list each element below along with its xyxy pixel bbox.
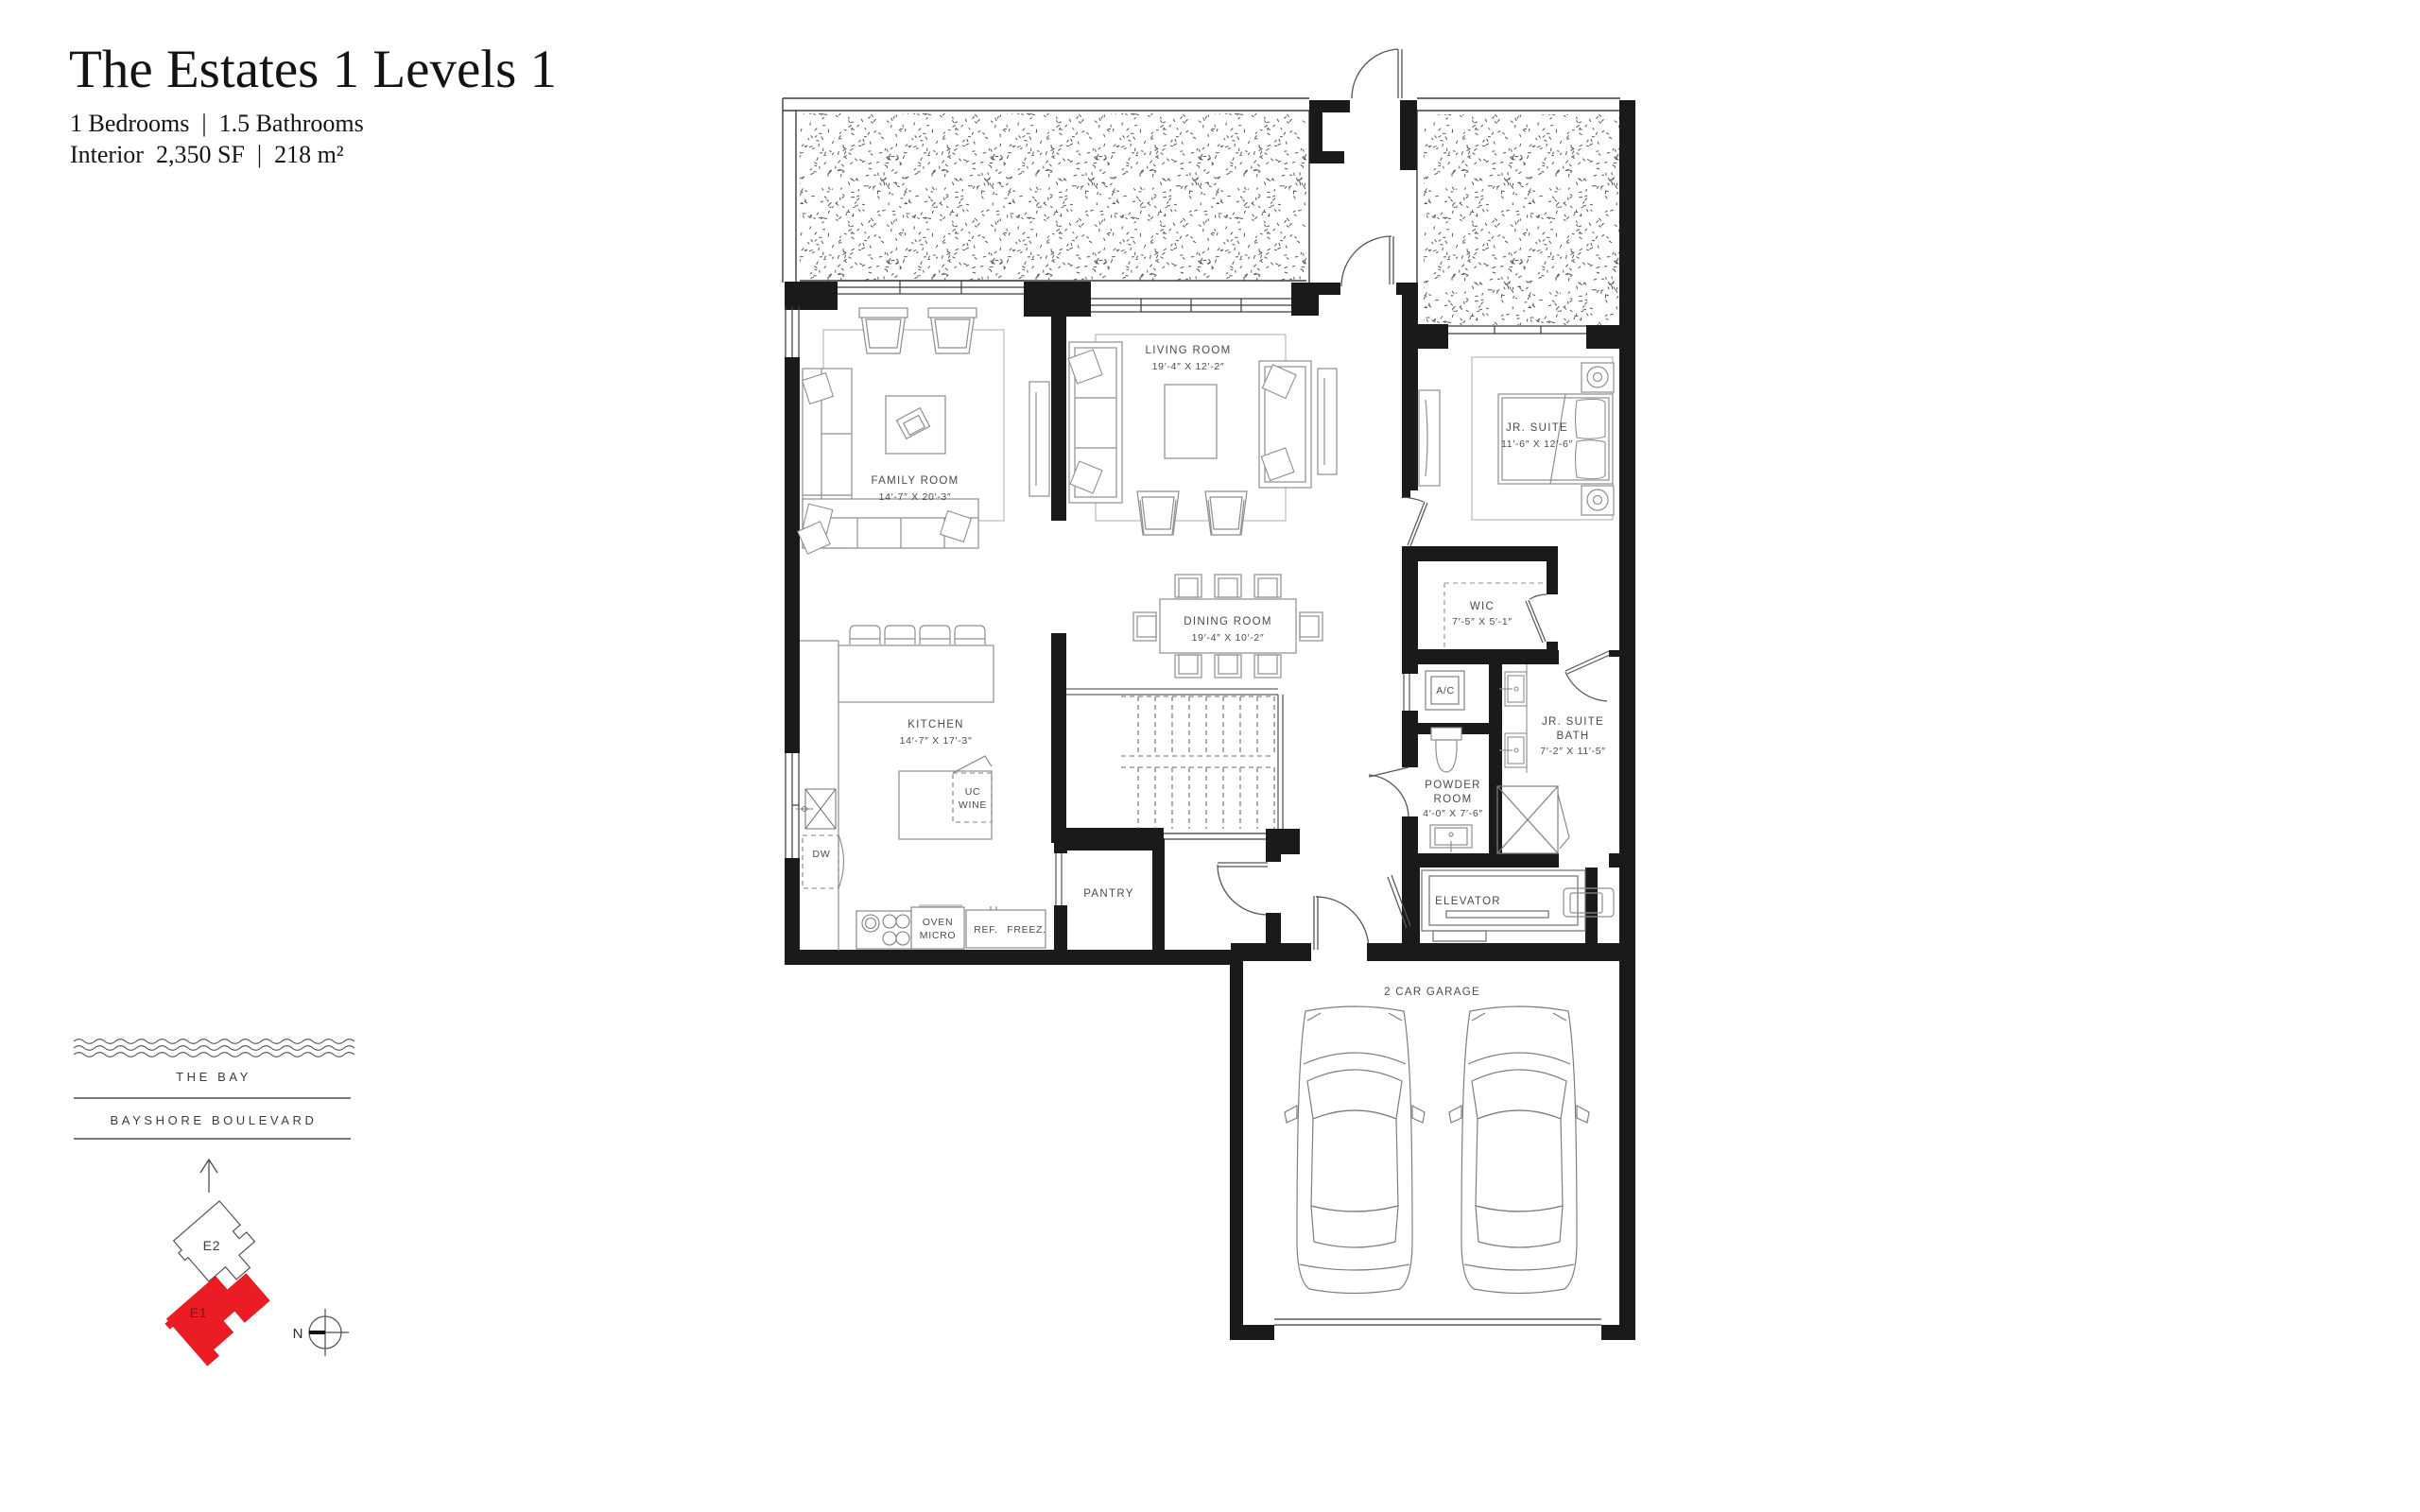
svg-text:Interior 2,350 SF | 218 m²: Interior 2,350 SF | 218 m² [70,141,344,168]
svg-text:DINING ROOM: DINING ROOM [1184,616,1272,627]
svg-text:ELEVATOR: ELEVATOR [1435,896,1501,907]
svg-text:11′-6″ X 12′-6″: 11′-6″ X 12′-6″ [1501,438,1573,450]
svg-text:E1: E1 [190,1305,208,1320]
svg-text:LIVING ROOM: LIVING ROOM [1146,345,1232,356]
svg-text:THE BAY: THE BAY [176,1070,251,1084]
svg-text:ROOM: ROOM [1434,794,1473,805]
svg-text:FAMILY ROOM: FAMILY ROOM [871,475,959,487]
svg-text:WINE: WINE [959,799,987,811]
svg-text:1 Bedrooms | 1.5 Bathrooms: 1 Bedrooms | 1.5 Bathrooms [70,110,364,137]
svg-text:REF.: REF. [974,924,998,936]
svg-text:JR. SUITE: JR. SUITE [1506,422,1568,434]
svg-text:JR. SUITE: JR. SUITE [1542,716,1604,728]
svg-text:MICRO: MICRO [920,930,957,941]
svg-text:DW: DW [813,849,831,860]
svg-text:19′-4″ X 12′-2″: 19′-4″ X 12′-2″ [1152,361,1225,372]
svg-text:N: N [293,1326,303,1342]
svg-text:14′-7″ X 17′-3″: 14′-7″ X 17′-3″ [900,735,973,747]
svg-text:WIC: WIC [1470,601,1495,612]
svg-text:BATH: BATH [1556,730,1589,742]
svg-text:UC: UC [965,786,981,798]
svg-text:A/C: A/C [1436,685,1455,696]
svg-text:FREEZ.: FREEZ. [1007,924,1046,936]
svg-text:The Estates 1 Levels 1: The Estates 1 Levels 1 [69,40,557,99]
svg-text:BAYSHORE BOULEVARD: BAYSHORE BOULEVARD [111,1113,318,1127]
svg-text:19′-4″ X 10′-2″: 19′-4″ X 10′-2″ [1192,632,1265,644]
svg-text:4′-0″ X 7′-6″: 4′-0″ X 7′-6″ [1423,808,1483,819]
svg-text:7′-5″ X 5′-1″: 7′-5″ X 5′-1″ [1452,616,1512,627]
svg-text:7′-2″ X 11′-5″: 7′-2″ X 11′-5″ [1540,746,1605,757]
svg-text:POWDER: POWDER [1425,780,1481,791]
svg-text:2 CAR GARAGE: 2 CAR GARAGE [1384,987,1480,998]
svg-text:E2: E2 [203,1238,221,1253]
svg-text:PANTRY: PANTRY [1083,888,1133,900]
svg-text:KITCHEN: KITCHEN [907,719,964,730]
svg-text:14′-7″ X 20′-3″: 14′-7″ X 20′-3″ [879,491,952,503]
svg-text:OVEN: OVEN [923,917,954,928]
